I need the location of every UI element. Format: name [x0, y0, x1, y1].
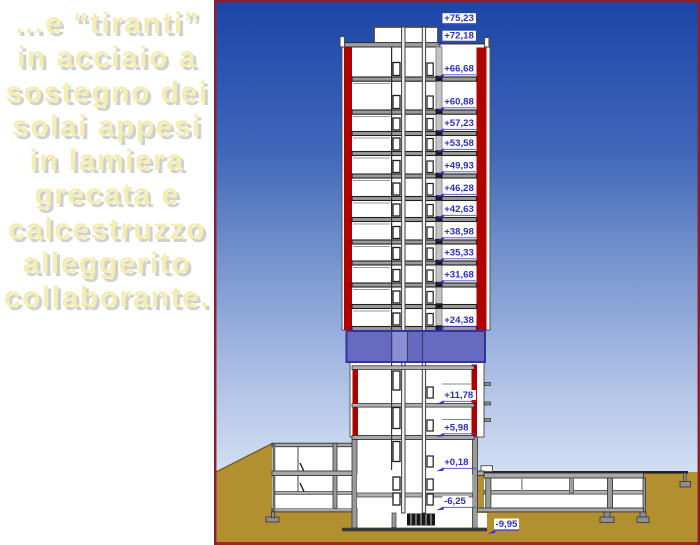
svg-text:+53,58: +53,58 — [444, 138, 474, 149]
svg-text:+72,18: +72,18 — [444, 31, 474, 42]
svg-text:+35,33: +35,33 — [444, 248, 474, 259]
svg-text:+38,98: +38,98 — [444, 227, 474, 238]
svg-text:+11,78: +11,78 — [444, 390, 474, 401]
svg-text:+5,98: +5,98 — [444, 423, 469, 434]
svg-text:-6,25: -6,25 — [444, 496, 467, 507]
svg-text:+46,28: +46,28 — [444, 183, 474, 194]
svg-text:+0,18: +0,18 — [444, 457, 469, 468]
svg-text:+60,88: +60,88 — [444, 97, 474, 108]
svg-text:-9,95: -9,95 — [496, 519, 519, 530]
svg-text:+49,93: +49,93 — [444, 161, 474, 172]
svg-text:+66,68: +66,68 — [444, 64, 474, 75]
svg-text:+42,63: +42,63 — [444, 204, 474, 215]
svg-text:+24,38: +24,38 — [444, 315, 474, 326]
svg-text:+75,23: +75,23 — [444, 13, 474, 24]
svg-text:+31,68: +31,68 — [444, 270, 474, 281]
svg-text:+57,23: +57,23 — [444, 118, 474, 129]
